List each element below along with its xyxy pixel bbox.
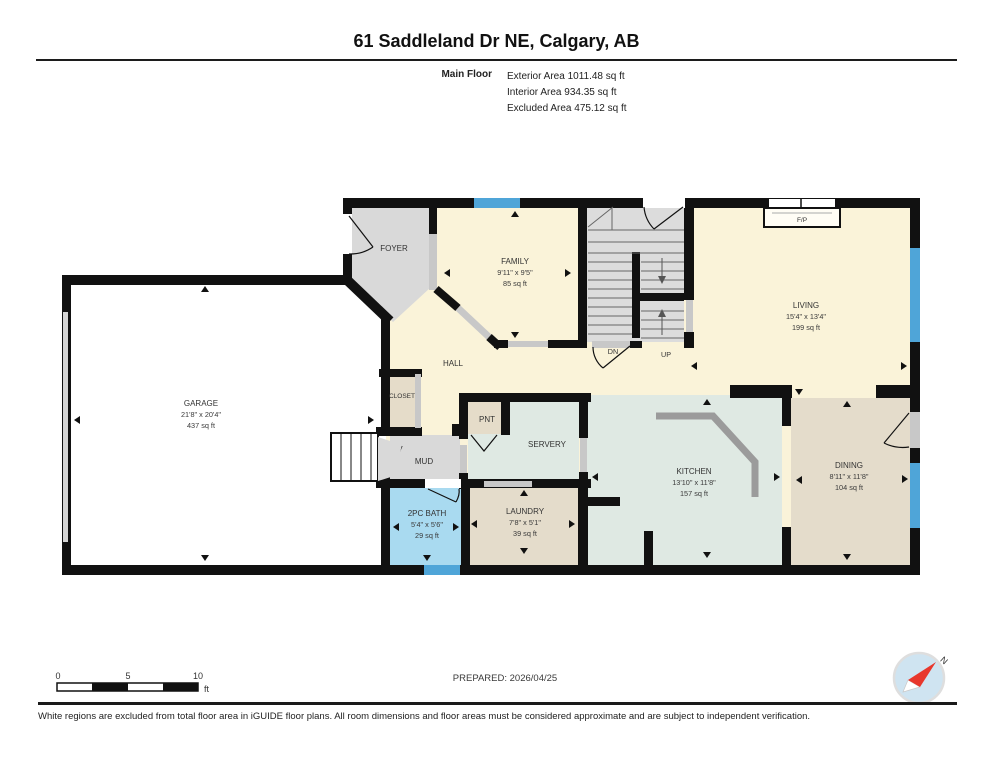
servery-label: SERVERY — [528, 440, 567, 449]
living-label: LIVING — [793, 301, 819, 310]
stairs-up-label: UP — [661, 350, 671, 359]
family-label: FAMILY — [501, 257, 530, 266]
fireplace-icon: F/P — [764, 199, 840, 227]
kitchen-dims: 13'10" x 11'8" — [672, 478, 716, 487]
compass-icon: N — [894, 653, 950, 703]
front-door-opening — [343, 214, 352, 254]
bath-area: 29 sq ft — [415, 531, 439, 540]
bath-label: 2PC BATH — [408, 509, 447, 518]
window-family — [474, 198, 520, 208]
closet-label: CLOSET — [389, 393, 415, 400]
kitchen-label: KITCHEN — [676, 467, 711, 476]
room-garage-area — [66, 280, 386, 570]
scale-tick-0: 0 — [55, 671, 60, 681]
floor-plan: F/P GARAGE 21'8" x 20'4" 437 sq ft FOYER… — [0, 0, 993, 768]
mud-label: MUD — [415, 457, 433, 466]
pantry-label: PNT — [479, 415, 495, 424]
scale-bar: 0 5 10 ft — [55, 671, 209, 694]
laundry-area: 39 sq ft — [513, 529, 537, 538]
scale-tick-5: 5 — [125, 671, 130, 681]
family-dims: 9'11" x 9'5" — [497, 268, 533, 277]
dining-area: 104 sq ft — [835, 483, 863, 492]
prepared-date: PREPARED: 2026/04/25 — [453, 673, 557, 684]
hall-label: HALL — [443, 359, 464, 368]
dining-dims: 8'11" x 11'8" — [830, 472, 869, 481]
stair-entry-opening — [643, 198, 685, 208]
dining-label: DINING — [835, 461, 863, 470]
garage-area: 437 sq ft — [187, 421, 215, 430]
garage-dims: 21'8" x 20'4" — [181, 410, 221, 419]
bath-door-opening — [425, 479, 461, 488]
room-dining-area — [791, 398, 910, 565]
window-living — [910, 248, 920, 342]
family-area: 85 sq ft — [503, 279, 527, 288]
footer-divider — [38, 702, 957, 705]
scale-unit: ft — [204, 684, 210, 694]
window-bath — [424, 565, 460, 575]
laundry-dims: 7'8" x 5'1" — [509, 518, 541, 527]
kitchen-area: 157 sq ft — [680, 489, 708, 498]
foyer-label: FOYER — [380, 244, 408, 253]
fireplace-label: F/P — [797, 217, 807, 224]
room-closet-area — [390, 374, 415, 428]
window-dining — [910, 463, 920, 528]
living-area: 199 sq ft — [792, 323, 820, 332]
bath-dims: 5'4" x 5'6" — [411, 520, 443, 529]
laundry-label: LAUNDRY — [506, 507, 545, 516]
garage-label: GARAGE — [184, 399, 218, 408]
garage-door-icon — [63, 312, 68, 542]
dining-exterior-door — [910, 412, 920, 448]
living-dims: 15'4" x 13'4" — [786, 312, 826, 321]
scale-tick-10: 10 — [193, 671, 203, 681]
disclaimer-text: White regions are excluded from total fl… — [38, 711, 968, 722]
stairs-down-label: DN — [608, 347, 618, 356]
